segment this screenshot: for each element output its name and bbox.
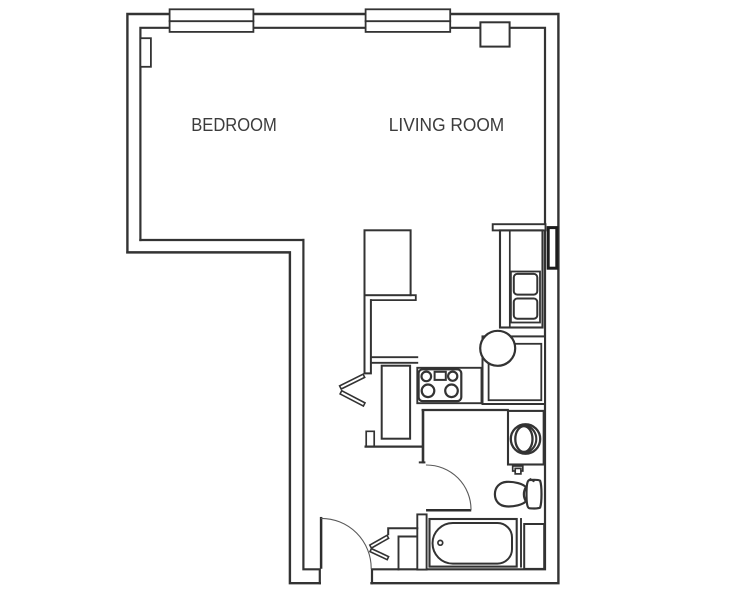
svg-text:LIVING ROOM: LIVING ROOM <box>389 114 505 135</box>
svg-text:BEDROOM: BEDROOM <box>191 114 277 135</box>
